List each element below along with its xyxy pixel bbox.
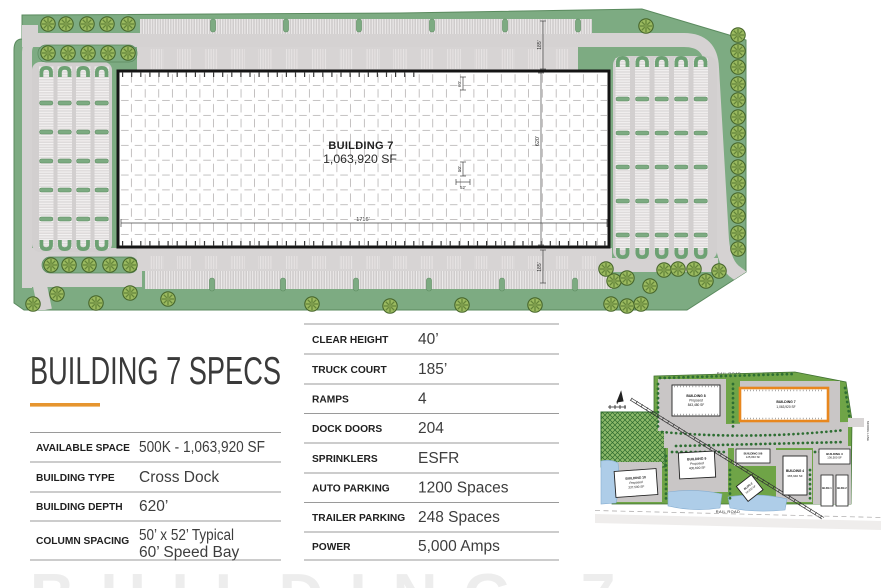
svg-text:500K - 1,063,920 SF: 500K - 1,063,920 SF: [139, 439, 265, 456]
svg-text:COLUMN SPACING: COLUMN SPACING: [36, 536, 129, 547]
svg-text:1716’: 1716’: [356, 217, 369, 223]
svg-text:185’: 185’: [537, 262, 543, 271]
svg-text:4: 4: [418, 391, 427, 408]
svg-text:248 Spaces: 248 Spaces: [418, 509, 500, 526]
svg-text:5,000 Amps: 5,000 Amps: [418, 538, 500, 555]
svg-text:MOORE LANE: MOORE LANE: [866, 421, 870, 441]
svg-text:BUILDING TYPE: BUILDING TYPE: [36, 473, 115, 484]
svg-text:620’: 620’: [139, 498, 168, 515]
svg-text:1200 Spaces: 1200 Spaces: [418, 480, 509, 497]
svg-text:RAIL ROAD: RAIL ROAD: [716, 509, 740, 514]
svg-text:BUILDING 7 SPECS: BUILDING 7 SPECS: [30, 350, 281, 393]
svg-text:TRUCK COURT: TRUCK COURT: [312, 365, 387, 376]
svg-text:Proposed: Proposed: [689, 399, 703, 403]
svg-text:CLEAR HEIGHT: CLEAR HEIGHT: [312, 335, 389, 346]
svg-text:365,940 SF: 365,940 SF: [787, 474, 803, 478]
svg-text:BUILDING DEPTH: BUILDING DEPTH: [36, 502, 123, 513]
svg-text:BLDG 2: BLDG 2: [837, 486, 847, 490]
svg-text:60’ Speed Bay: 60’ Speed Bay: [139, 544, 240, 561]
svg-text:AUTO PARKING: AUTO PARKING: [312, 484, 390, 495]
svg-text:52’: 52’: [460, 185, 466, 190]
svg-text:204: 204: [418, 420, 444, 437]
svg-text:1,063,920 SF: 1,063,920 SF: [776, 405, 795, 409]
svg-text:TRAILER PARKING: TRAILER PARKING: [312, 513, 405, 524]
svg-text:ESFR: ESFR: [418, 450, 459, 467]
svg-text:50’: 50’: [457, 166, 462, 172]
svg-text:185’: 185’: [418, 361, 447, 378]
svg-text:1,063,920 SF: 1,063,920 SF: [323, 152, 397, 166]
svg-text:BUILDING 7: BUILDING 7: [328, 140, 393, 152]
svg-text:BUILDING 7: BUILDING 7: [776, 400, 795, 404]
svg-text:620’: 620’: [535, 136, 541, 146]
svg-text:Cross Dock: Cross Dock: [139, 469, 219, 486]
svg-text:50’ x 52’ Typical: 50’ x 52’ Typical: [139, 527, 234, 544]
svg-text:843,480 SF: 843,480 SF: [688, 403, 705, 407]
svg-text:136,500 SF: 136,500 SF: [827, 456, 842, 460]
svg-text:SPRINKLERS: SPRINKLERS: [312, 454, 378, 465]
svg-text:185’: 185’: [537, 40, 543, 49]
svg-text:125,840 SF: 125,840 SF: [746, 455, 761, 459]
svg-text:POWER: POWER: [312, 542, 351, 553]
svg-text:AVAILABLE SPACE: AVAILABLE SPACE: [36, 443, 130, 454]
svg-text:60’: 60’: [457, 81, 462, 87]
svg-text:RAMPS: RAMPS: [312, 395, 349, 406]
svg-text:DOCK DOORS: DOCK DOORS: [312, 424, 382, 435]
svg-text:BUILDING 8: BUILDING 8: [686, 394, 705, 398]
svg-text:BUILDING 4: BUILDING 4: [786, 469, 804, 473]
svg-text:40’: 40’: [418, 331, 439, 348]
svg-text:BLDG 1: BLDG 1: [822, 486, 832, 490]
svg-text:BUILDING 7: BUILDING 7: [30, 562, 641, 588]
